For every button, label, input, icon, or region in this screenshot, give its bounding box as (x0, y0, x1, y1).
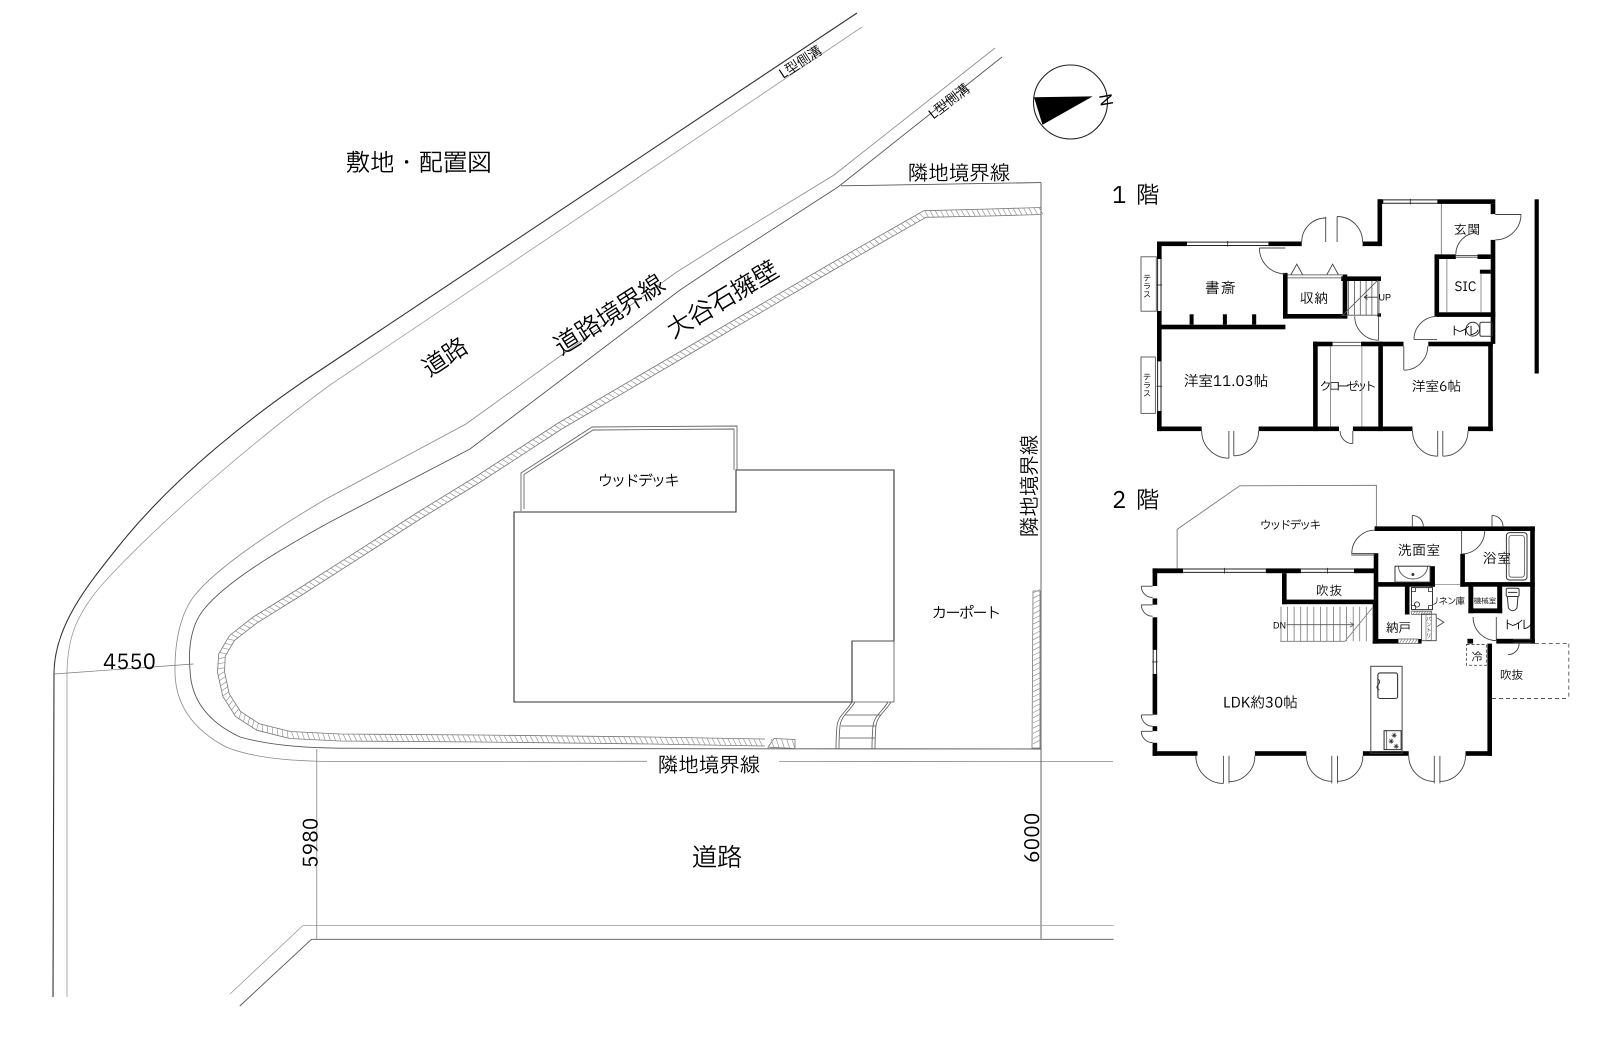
svg-text:DN: DN (1273, 621, 1286, 631)
svg-text:UP: UP (1379, 293, 1392, 303)
